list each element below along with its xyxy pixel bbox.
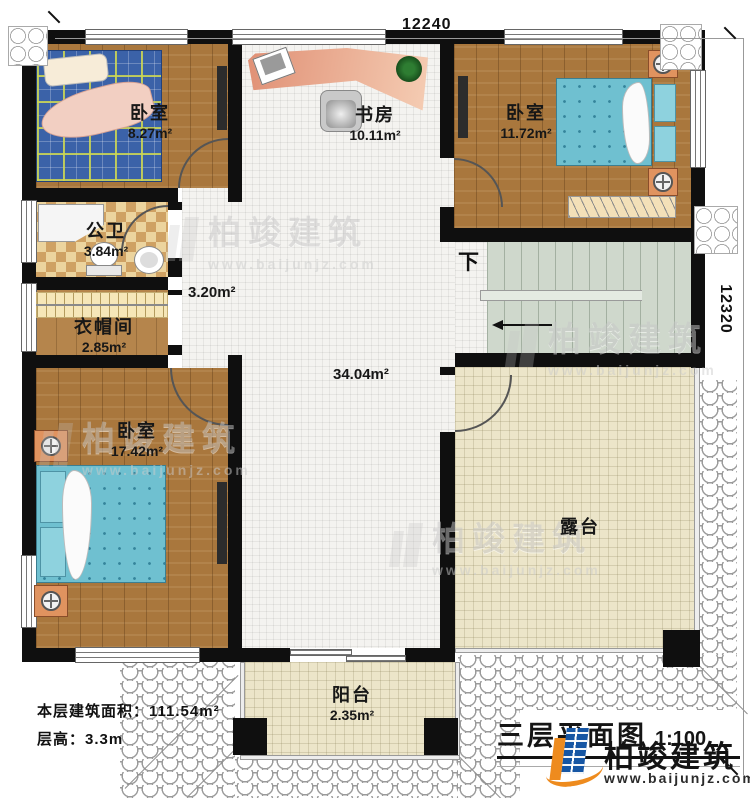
room-label-balcony: 阳台 2.35m² <box>330 684 374 724</box>
stairs-handrail <box>480 290 642 301</box>
dim-line-top <box>55 38 743 39</box>
floor-area-info: 本层建筑面积：111.54m² <box>37 700 220 721</box>
dim-top-value: 12240 <box>402 16 452 34</box>
floor-plan: 下 12240 12320 柏竣 <box>0 0 750 798</box>
wall-terrace-west-b <box>440 432 455 648</box>
wall-terrace-west-a <box>440 367 455 375</box>
window-north-study <box>232 29 386 45</box>
room-label-terrace: 露台 <box>560 516 600 539</box>
stairs-direction-line <box>502 324 552 326</box>
dim-tick <box>48 11 61 24</box>
flue-symbol <box>660 24 702 70</box>
wall-cloak-south <box>22 355 168 368</box>
stairs-down-label: 下 <box>458 246 479 276</box>
room-label-bedroom-top-right: 卧室 11.72m² <box>500 102 551 142</box>
lamp <box>41 436 61 456</box>
roof-tiles-right <box>700 380 737 655</box>
roof-tiles-bottom <box>235 757 458 798</box>
wall-bedroomTL-east <box>228 44 242 202</box>
tv-bedroomB <box>217 482 227 564</box>
wall-south-hall-left <box>242 648 290 662</box>
tv-bedroomTR <box>458 76 468 138</box>
wall-stairs-north <box>440 228 705 242</box>
clothes-rail <box>36 304 168 306</box>
sink-basin <box>140 252 158 268</box>
sliding-door-leaf-right <box>346 655 406 662</box>
pillow <box>654 84 676 122</box>
balcony-column-right <box>424 718 458 755</box>
roof-tiles-under-terrace <box>520 655 737 710</box>
lamp <box>653 172 673 192</box>
company-logo-url: www.baijunjz.com <box>604 770 750 786</box>
wall-south-hall-right <box>405 648 455 662</box>
balcony-railing-bottom <box>240 755 460 760</box>
terrace-corner-column <box>663 630 700 667</box>
room-label-bedroom-bottom: 卧室 17.42m² <box>111 420 163 460</box>
room-label-bathroom: 公卫 3.84m² <box>84 220 128 260</box>
floor-height-label: 层高： <box>37 731 85 748</box>
wall-study-east-b <box>440 207 454 228</box>
toilet-tank <box>86 265 122 276</box>
pillow <box>654 126 676 162</box>
flue-symbol <box>694 206 738 254</box>
wall-bedroomB-east <box>228 355 242 648</box>
floor-area-label: 本层建筑面积： <box>37 703 149 720</box>
window-west-cloakroom <box>21 283 37 352</box>
wall-bath-south <box>36 277 168 290</box>
wall-bath-east-b <box>168 258 182 277</box>
room-label-study: 书房 10.11m² <box>349 104 400 144</box>
window-north-bedroomTR <box>504 29 623 45</box>
wall-bath-east-a <box>168 202 182 210</box>
sliding-door-leaf-left <box>290 649 352 656</box>
tv-bedroomTL <box>217 66 227 130</box>
company-logo-icon <box>552 728 598 788</box>
hall-main-area-label: 34.04m² <box>333 366 389 383</box>
floor-height-value: 3.3m <box>85 731 123 748</box>
window-east-bedroomTR <box>690 70 706 168</box>
wall-cloak-east-a <box>168 290 182 295</box>
terrace-railing-right <box>694 367 700 650</box>
balcony-column-left <box>233 718 267 755</box>
dim-line-right <box>743 38 744 775</box>
wall-stairs-south <box>455 353 705 367</box>
plant <box>396 56 422 82</box>
flue-symbol <box>8 26 48 66</box>
window-west-bathroom <box>21 200 37 263</box>
wall-bedroomTL-south <box>36 188 178 202</box>
hall-upper-area-label: 3.20m² <box>188 284 236 301</box>
bench <box>568 196 676 218</box>
wall-cloak-east-b <box>168 345 182 355</box>
lamp <box>41 591 61 611</box>
floor-area-value: 111.54m² <box>149 703 220 720</box>
dim-right-value: 12320 <box>716 279 734 339</box>
floor-height-info: 层高：3.3m <box>37 728 123 749</box>
logo-swoosh <box>545 762 605 789</box>
room-label-cloakroom: 衣帽间 2.85m² <box>74 316 134 356</box>
window-north-bedroomTL <box>85 29 188 45</box>
window-south-bedroomB <box>75 647 200 663</box>
room-label-bedroom-top-left: 卧室 8.27m² <box>128 102 172 142</box>
wall-study-east-a <box>440 44 454 158</box>
pillow <box>40 527 66 577</box>
